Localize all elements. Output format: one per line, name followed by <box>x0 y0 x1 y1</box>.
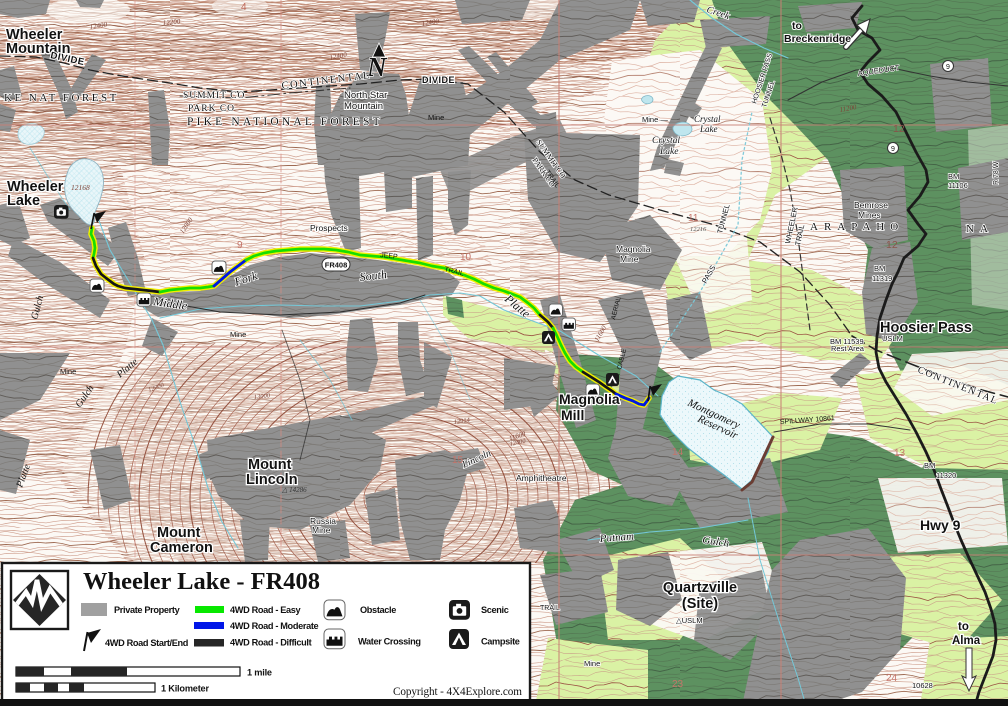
svg-text:1 Kilometer: 1 Kilometer <box>161 684 209 694</box>
svg-text:Rest Area: Rest Area <box>831 344 865 353</box>
svg-text:NA: NA <box>966 223 994 235</box>
svg-text:PIKE NATIONAL FOREST: PIKE NATIONAL FOREST <box>187 116 383 128</box>
svg-text:11319: 11319 <box>872 274 892 283</box>
svg-text:11106: 11106 <box>948 181 968 190</box>
svg-text:12: 12 <box>886 239 898 251</box>
svg-text:Putnam: Putnam <box>598 531 634 545</box>
svg-text:to: to <box>958 621 969 633</box>
svg-text:Mine: Mine <box>428 113 444 122</box>
svg-text:BM: BM <box>924 461 935 470</box>
svg-text:9: 9 <box>237 240 243 251</box>
svg-text:14: 14 <box>672 447 684 458</box>
svg-text:Mine: Mine <box>230 330 246 339</box>
svg-text:Private Property: Private Property <box>114 605 181 615</box>
svg-text:FR408: FR408 <box>325 261 348 270</box>
svg-text:Hwy 9: Hwy 9 <box>920 517 961 533</box>
svg-text:Lake: Lake <box>659 147 678 157</box>
svg-text:Mine —: Mine — <box>642 115 668 124</box>
svg-text:4: 4 <box>241 2 247 13</box>
svg-text:24: 24 <box>886 673 898 684</box>
svg-text:KE NAT FOREST: KE NAT FOREST <box>4 92 119 104</box>
svg-text:Breckenridge: Breckenridge <box>784 33 851 45</box>
svg-text:Bemrose: Bemrose <box>854 200 888 210</box>
svg-text:12: 12 <box>893 123 905 135</box>
svg-text:Water Crossing: Water Crossing <box>358 637 421 647</box>
svg-text:Amphitheatre: Amphitheatre <box>516 473 567 483</box>
svg-text:South: South <box>359 267 388 284</box>
svg-text:Mine: Mine <box>312 525 331 535</box>
svg-text:Mine: Mine <box>60 367 76 376</box>
svg-text:PARK CO: PARK CO <box>188 104 235 114</box>
svg-text:4WD Road Start/End: 4WD Road Start/End <box>105 638 188 648</box>
svg-text:12216: 12216 <box>690 226 707 233</box>
svg-text:North Star: North Star <box>344 90 387 101</box>
svg-text:4WD Road - Easy: 4WD Road - Easy <box>230 605 302 615</box>
svg-text:BM: BM <box>874 264 885 273</box>
svg-text:BM: BM <box>948 172 959 181</box>
svg-text:Mine: Mine <box>620 254 639 264</box>
svg-text:Lake: Lake <box>7 193 40 209</box>
svg-text:15: 15 <box>452 455 464 466</box>
svg-text:Mill: Mill <box>561 407 584 423</box>
svg-text:Campsite: Campsite <box>481 637 520 647</box>
svg-text:Mount: Mount <box>157 525 201 541</box>
svg-text:Crystal: Crystal <box>694 114 721 124</box>
svg-text:13: 13 <box>894 448 906 459</box>
svg-text:Wheeler Lake - FR408: Wheeler Lake - FR408 <box>83 568 320 595</box>
svg-text:Magnolia: Magnolia <box>616 244 651 254</box>
svg-text:△ 14286: △ 14286 <box>281 486 307 494</box>
svg-text:4WD Road - Moderate: 4WD Road - Moderate <box>230 621 319 631</box>
svg-text:△USLM: △USLM <box>676 616 703 625</box>
svg-text:ARAPAHO: ARAPAHO <box>810 221 904 233</box>
svg-text:23: 23 <box>672 679 684 690</box>
svg-text:12168: 12168 <box>71 183 90 192</box>
svg-text:Mount: Mount <box>248 457 292 473</box>
svg-text:10: 10 <box>460 252 472 263</box>
svg-text:Magnolia: Magnolia <box>559 391 620 407</box>
svg-text:11: 11 <box>688 213 699 224</box>
svg-text:Mines: Mines <box>858 210 881 220</box>
svg-text:to: to <box>792 20 802 32</box>
svg-text:Alma: Alma <box>952 635 981 647</box>
svg-text:Mountain: Mountain <box>344 101 383 112</box>
svg-text:USLM: USLM <box>882 334 903 343</box>
svg-text:4WD Road - Difficult: 4WD Road - Difficult <box>230 638 312 648</box>
svg-text:Scenic: Scenic <box>481 605 509 615</box>
svg-text:Prospects: Prospects <box>310 223 348 233</box>
svg-text:Crystal: Crystal <box>652 136 680 146</box>
svg-text:TRAIL: TRAIL <box>540 605 560 612</box>
svg-text:1 mile: 1 mile <box>247 668 272 678</box>
svg-text:11320: 11320 <box>936 471 956 480</box>
svg-text:10628: 10628 <box>912 681 933 690</box>
svg-text:Lake: Lake <box>699 124 718 134</box>
svg-text:SUMMIT CO: SUMMIT CO <box>183 91 245 101</box>
svg-text:R 78 W: R 78 W <box>993 161 1000 185</box>
svg-text:DIVIDE: DIVIDE <box>422 75 455 85</box>
svg-text:9: 9 <box>891 146 895 153</box>
svg-text:Obstacle: Obstacle <box>360 605 396 615</box>
svg-text:12200: 12200 <box>162 17 181 27</box>
svg-text:(Site): (Site) <box>682 596 718 612</box>
svg-text:9: 9 <box>946 64 950 71</box>
svg-text:Cameron: Cameron <box>150 540 213 556</box>
svg-text:Mine: Mine <box>584 659 600 668</box>
svg-text:Quartzville: Quartzville <box>663 580 737 596</box>
svg-text:Copyright - 4X4Explore.com: Copyright - 4X4Explore.com <box>393 686 522 698</box>
